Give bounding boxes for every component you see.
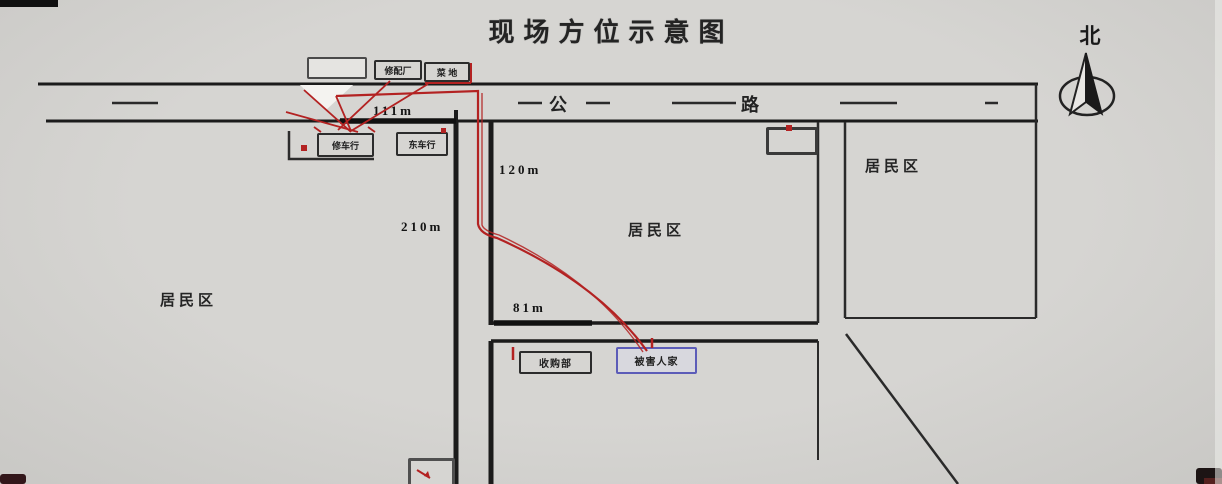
- vegetable-plot-label: 菜 地: [437, 66, 458, 79]
- distance-120m: 120m: [499, 162, 541, 178]
- repair-factory-box: 修配厂: [374, 60, 422, 80]
- residential-area-right-label: 居民区: [865, 155, 922, 176]
- road-name-right-char: 路: [741, 91, 763, 117]
- diagonal-lane: [846, 334, 958, 484]
- site-sketch-map: 现场方位示意图 北 公 路 111m 120m 210m 81m 居民区 居民区…: [0, 0, 1222, 484]
- residential-area-middle-label: 居民区: [628, 219, 685, 240]
- vegetable-plot-box: 菜 地: [424, 62, 470, 82]
- frame-artifact-bottom-left: [0, 474, 26, 484]
- distance-210m: 210m: [401, 219, 443, 235]
- unlabeled-building-box: [307, 57, 367, 79]
- west-bike-shop-label: 修车行: [332, 139, 359, 152]
- purchase-station-box: 收购部: [519, 351, 592, 374]
- distance-81m: 81m: [513, 300, 546, 316]
- compass-rose-icon: [1060, 53, 1114, 115]
- page-title: 现场方位示意图: [0, 12, 1222, 49]
- road-pointer-triangle: [300, 85, 353, 110]
- distance-111m: 111m: [373, 103, 414, 119]
- repair-factory-label: 修配厂: [384, 64, 411, 77]
- north-label: 北: [1070, 20, 1110, 50]
- frame-edge-right-strip: [1215, 0, 1222, 484]
- bottom-building-box: [408, 458, 455, 484]
- map-base-linework: [0, 0, 1222, 484]
- victim-home-label: 被害人家: [635, 353, 679, 368]
- road-name-left-char: 公: [549, 91, 571, 117]
- victim-home-box: 被害人家: [616, 347, 697, 374]
- frame-artifact-top-left: [0, 0, 58, 7]
- corner-building-box: [766, 127, 818, 155]
- west-bike-shop-box: 修车行: [317, 133, 374, 157]
- residential-area-left-label: 居民区: [160, 289, 217, 310]
- east-bike-shop-box: 东车行: [396, 132, 448, 156]
- east-bike-shop-label: 东车行: [408, 138, 435, 151]
- purchase-station-label: 收购部: [539, 355, 572, 370]
